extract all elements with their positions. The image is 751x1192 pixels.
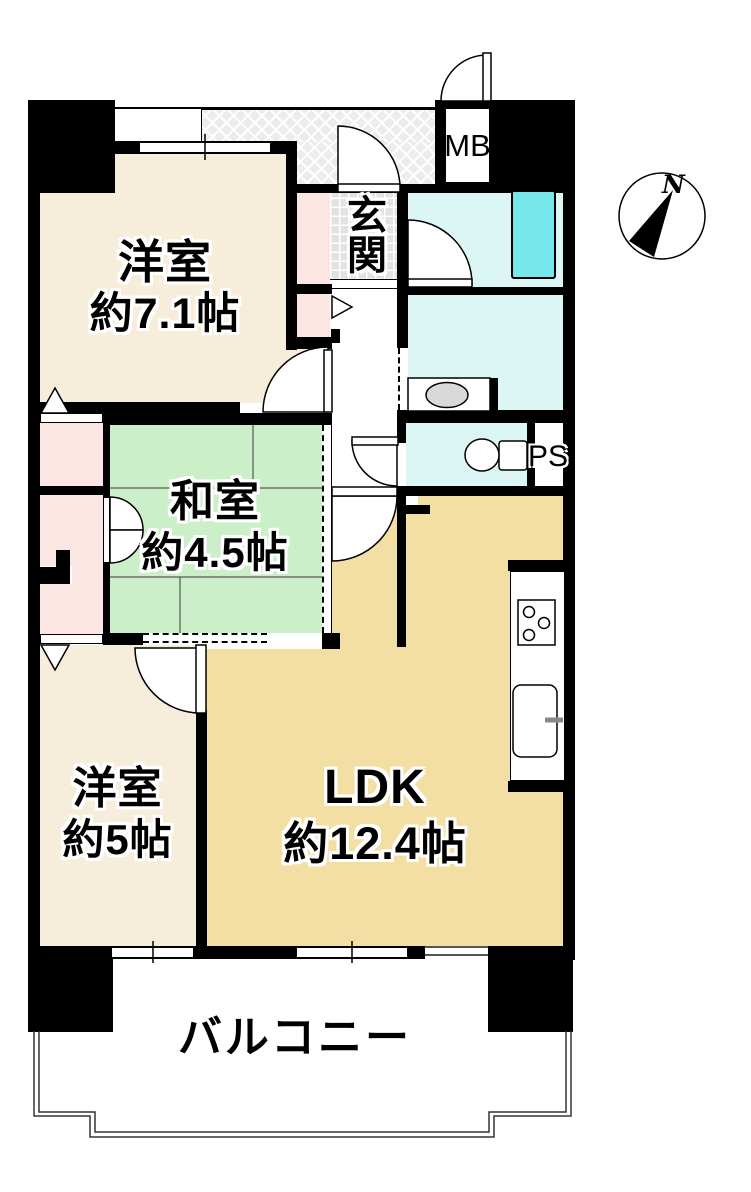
balcony-sliding-window [425,946,488,956]
hall-closet [297,293,330,337]
western-room-1-floor [286,349,332,414]
wall [322,633,340,649]
western-room-2-label: 洋室 約5帖 [25,763,210,864]
wall [193,946,297,959]
western-room-2-door-leaf [196,645,206,713]
closet-2 [40,495,103,566]
closet-2 [72,566,103,584]
room-size: 約5帖 [62,815,172,865]
closet-1 [40,423,103,486]
meter-box: MB [444,107,491,184]
room-name: 洋室 [118,235,212,289]
room-size: 約4.5帖 [141,528,288,578]
window-bottom-left [112,946,193,959]
wall [398,287,565,295]
compass-needle [629,190,673,257]
room-name: 和室 [170,476,260,528]
western-room-1-label: 洋室 約7.1帖 [40,235,290,340]
wall [397,505,406,647]
compass-north-label: N [662,170,685,199]
meter-box-label: MB [444,128,491,164]
washroom-floor [408,295,565,410]
wall [407,946,425,959]
balcony-label: バルコニー [90,1012,500,1064]
wall [56,550,70,567]
wall [38,567,70,584]
wall [103,633,143,645]
wall [397,184,408,348]
wall [488,946,573,1032]
wall [286,337,332,349]
japanese-room-label: 和室 約4.5帖 [105,476,325,577]
wall [113,107,446,109]
mb-door-leaf [483,53,491,101]
entrance-step [330,279,398,289]
floor-plan: MB [0,0,751,1192]
shoe-closet [297,184,330,284]
common-corridor [201,109,435,142]
ldk-label: LDK 約12.4帖 [260,760,490,870]
mb-door-arc [441,55,487,101]
kitchen-counter [510,571,565,781]
wall [508,560,566,571]
closet-door-bar [40,634,103,644]
wall [406,505,430,514]
bathtub [511,190,556,279]
closet-door-bar [40,413,103,423]
room-size: 約12.4帖 [283,817,467,870]
wall [286,284,332,294]
room-name: 洋室 [73,763,163,815]
room-size: 約7.1帖 [90,289,241,340]
washroom-sliding-door [398,348,407,410]
window-top [140,141,270,154]
wall [331,329,340,343]
wall [397,423,406,443]
wall [508,781,566,792]
entrance-label: 玄関 [338,188,388,280]
wall [563,102,575,960]
wall [397,410,573,423]
toilet-floor [406,423,527,486]
room-name: LDK [324,760,426,817]
fusuma-sliding-door [143,633,267,643]
wall-notch [406,496,418,505]
closet-3 [40,584,103,634]
pipe-space-label: PS [528,440,568,474]
wall [28,100,115,193]
common-corridor [293,142,435,184]
wall [397,486,573,496]
wall [103,413,332,425]
wall [38,486,103,495]
wall [490,378,498,411]
window-bottom-center [297,946,407,959]
